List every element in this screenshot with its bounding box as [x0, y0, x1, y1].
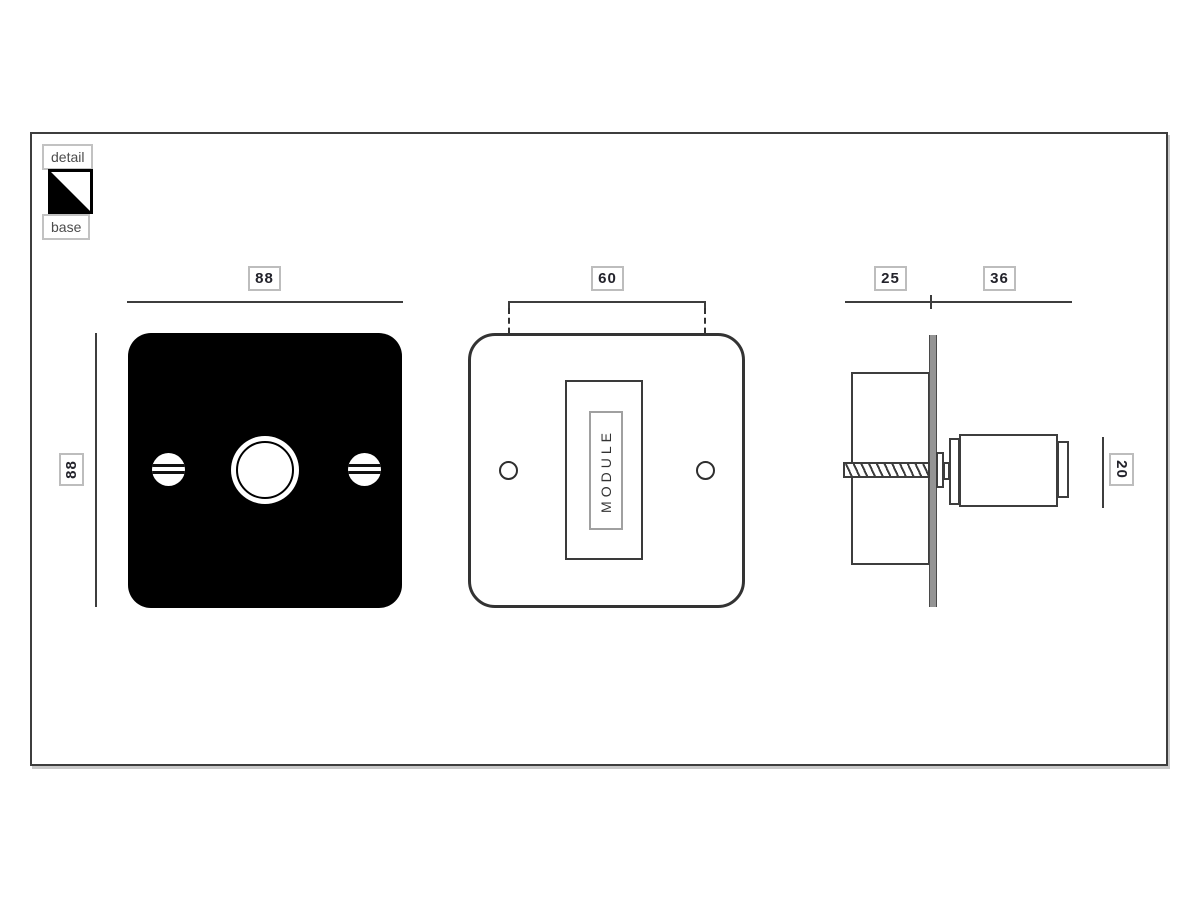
dimension-end-tick-right	[704, 301, 706, 308]
dimension-end-tick-left	[508, 301, 510, 308]
side-depth-dimension-line	[845, 301, 1072, 303]
module-cutout: MODULE	[565, 380, 643, 560]
legend-detail-label: detail	[42, 144, 93, 170]
screw-slot-line	[348, 464, 381, 467]
hole-spacing-dimension-label: 60	[591, 266, 624, 291]
screw-slot-line	[152, 471, 185, 474]
side-depth-divider-tick	[930, 295, 932, 309]
front-height-dimension-line	[95, 333, 97, 607]
legend-base-label: base	[42, 214, 90, 240]
knob-cap-right	[1057, 441, 1069, 498]
knob-depth-dimension-label: 36	[983, 266, 1016, 291]
front-width-dimension-label: 88	[248, 266, 281, 291]
screw-slot-line	[152, 464, 185, 467]
front-width-dimension-line	[127, 301, 403, 303]
box-depth-dimension-label: 25	[874, 266, 907, 291]
hole-spacing-dimension-line	[508, 301, 706, 303]
left-screw-icon	[152, 453, 185, 486]
module-label-box: MODULE	[589, 411, 623, 530]
knob-diameter-dimension-label: 20	[1109, 453, 1134, 486]
detail-base-diagonal-icon	[48, 169, 93, 214]
right-screw-hole	[696, 461, 715, 480]
knob-body-side	[959, 434, 1058, 507]
knob-diameter-label-wrap: 20	[1104, 454, 1138, 484]
front-height-dimension-label-wrap: 88	[54, 454, 88, 484]
dimmer-knob-front	[231, 436, 299, 504]
threaded-screw-rod	[843, 462, 930, 478]
drawing-canvas: detail base 88 88 60 MODULE 25 36	[0, 0, 1200, 900]
module-label: MODULE	[598, 429, 614, 513]
right-screw-icon	[348, 453, 381, 486]
knob-ring	[236, 441, 294, 499]
left-screw-hole	[499, 461, 518, 480]
screw-slot-line	[348, 471, 381, 474]
front-height-dimension-label: 88	[59, 453, 84, 486]
